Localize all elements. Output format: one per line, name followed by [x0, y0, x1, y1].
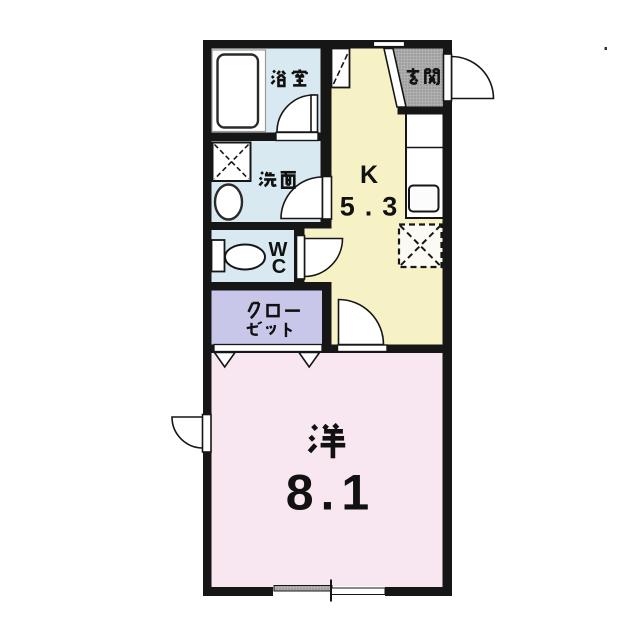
svg-text:C: C	[272, 256, 286, 278]
svg-text:K: K	[360, 161, 378, 189]
svg-text:5.3: 5.3	[340, 192, 408, 222]
svg-text:8.1: 8.1	[286, 465, 377, 521]
